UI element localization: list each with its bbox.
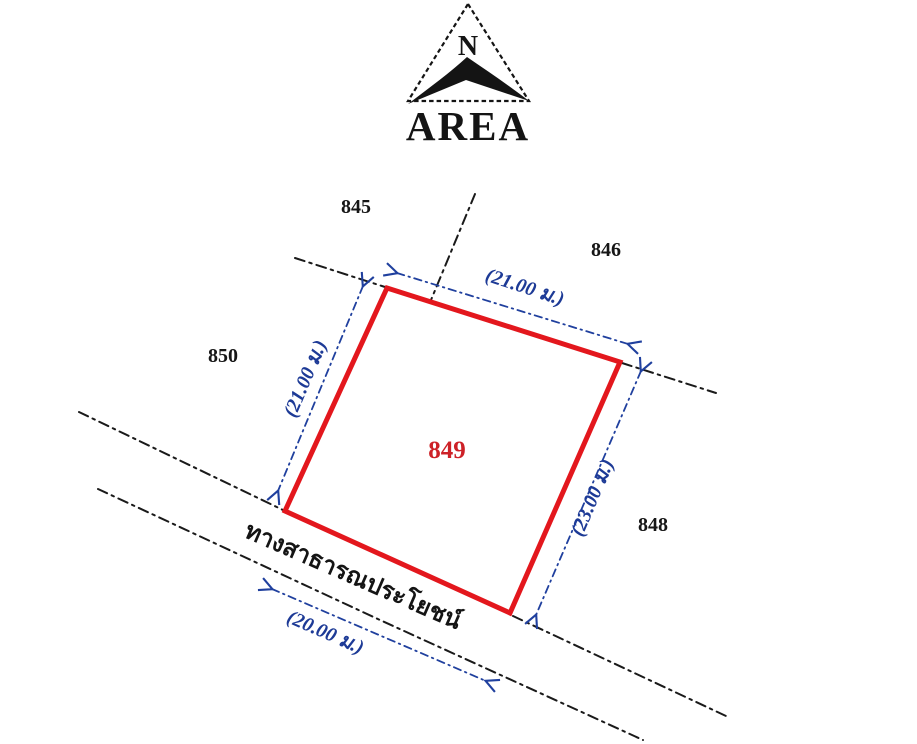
parcel-846-label: 846 <box>591 239 621 261</box>
land-survey-sheet: N AREA (21.00 ม.) (21.00 ม.) (23.00 ม.) <box>0 0 917 744</box>
boundary-line-upper-right <box>622 363 716 393</box>
north-arrow-compass: N AREA <box>406 4 530 149</box>
north-label: N <box>458 31 478 62</box>
boundary-line-845-846 <box>431 194 475 300</box>
brand-label: AREA <box>406 103 530 149</box>
parcel-849-label: 849 <box>428 437 466 464</box>
boundary-lines <box>79 194 726 740</box>
survey-map-canvas: N AREA (21.00 ม.) (21.00 ม.) (23.00 ม.) <box>0 0 917 744</box>
boundary-line-upper-left <box>295 258 385 287</box>
parcel-850-label: 850 <box>208 345 238 367</box>
dimension-label-left: (21.00 ม.) <box>279 337 331 421</box>
parcel-845-label: 845 <box>341 196 371 218</box>
dimension-label-road-width: (20.00 ม.) <box>284 606 368 659</box>
road-edge-lower <box>98 489 643 740</box>
compass-arrowhead-icon <box>408 57 529 104</box>
road-edge-upper-right <box>513 616 726 716</box>
parcel-848-label: 848 <box>638 514 668 536</box>
road-edge-upper-left <box>79 412 283 510</box>
